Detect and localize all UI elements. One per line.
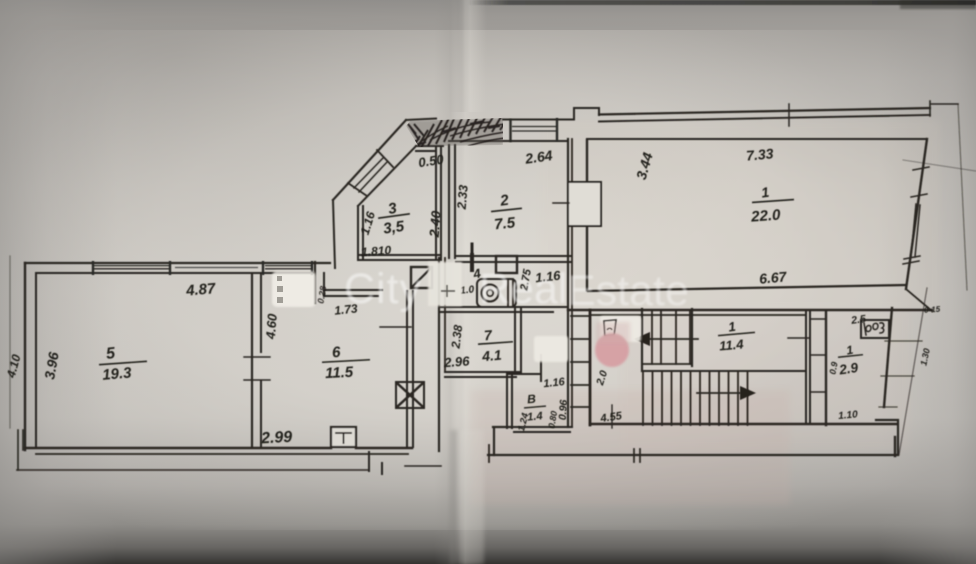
svg-text:2.38: 2.38 <box>448 324 465 350</box>
svg-text:0.96: 0.96 <box>557 399 570 420</box>
svg-text:3,5: 3,5 <box>382 218 406 238</box>
svg-text:2.40: 2.40 <box>427 210 444 239</box>
svg-text:6.67: 6.67 <box>758 268 788 286</box>
svg-text:2.9: 2.9 <box>837 360 859 378</box>
svg-text:2.99: 2.99 <box>260 429 293 448</box>
svg-text:2.33: 2.33 <box>455 184 471 211</box>
svg-text:7.5: 7.5 <box>493 214 516 233</box>
svg-text:В: В <box>527 392 537 407</box>
svg-text:7.33: 7.33 <box>745 145 774 163</box>
svg-text:Real: Real <box>479 265 567 313</box>
svg-text:1.16: 1.16 <box>543 376 566 390</box>
svg-text:4.60: 4.60 <box>263 312 280 340</box>
svg-text:0-15: 0-15 <box>924 305 941 315</box>
svg-text:2.96: 2.96 <box>443 353 471 370</box>
svg-text:1.10: 1.10 <box>838 409 859 422</box>
svg-text:22.0: 22.0 <box>750 207 782 226</box>
svg-text:2.5: 2.5 <box>850 313 867 327</box>
svg-text:19.3: 19.3 <box>102 364 133 384</box>
svg-text:Estate: Estate <box>567 267 689 315</box>
svg-text:4.1: 4.1 <box>481 347 503 365</box>
svg-text:11.5: 11.5 <box>325 364 355 382</box>
svg-text:1.810: 1.810 <box>361 243 392 259</box>
svg-text:City: City <box>344 265 422 313</box>
svg-text:11.4: 11.4 <box>719 336 745 353</box>
svg-text:4.87: 4.87 <box>184 280 216 300</box>
svg-text:0.9: 0.9 <box>828 361 840 375</box>
svg-text:1.0: 1.0 <box>460 284 475 296</box>
